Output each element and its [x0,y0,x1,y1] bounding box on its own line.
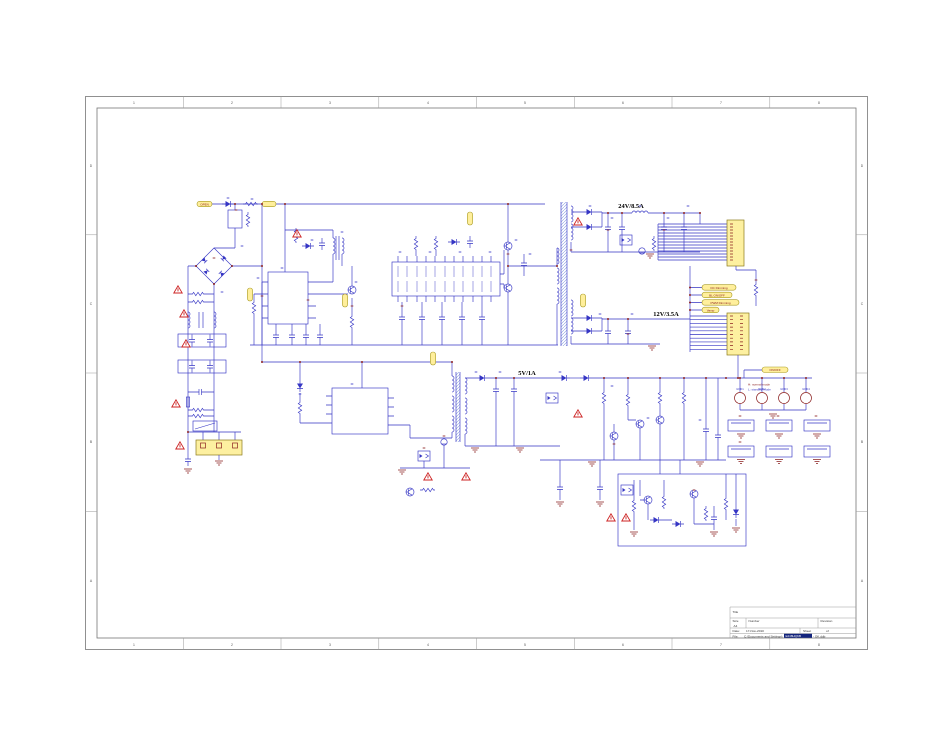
schematic-sheet: 12 34 56 78 12 34 56 78 DC BA DC BA Titl… [0,0,950,735]
net-label-vamp: Vamp [707,308,715,312]
net-label-dc-dimming: DC Dimming [710,286,727,290]
junction-dots [187,203,807,433]
size-label: Size [733,619,739,623]
svg-text:4: 4 [427,643,429,647]
svg-text:4: 4 [427,101,429,105]
emi-filter [178,292,226,373]
file-suffix: - OK.ddb [813,634,826,638]
svg-text:GND4: GND4 [802,387,810,391]
grid-row-labels-right: DC BA [861,164,864,583]
standby-ic [332,388,388,434]
grid-row-labels-left: DC BA [90,164,93,583]
rail-12v-label: 12V/3.5A [653,311,679,318]
svg-text:D: D [90,164,93,168]
svg-text:7: 7 [720,643,722,647]
svg-text:GND3: GND3 [780,387,788,391]
designator-specks [213,198,818,491]
size-value: A4 [734,624,738,628]
pwm-controller-ic [250,204,558,345]
svg-text:2: 2 [231,101,233,105]
standby-converter: 5V/1A [262,362,560,496]
number-label: Number [749,619,760,623]
svg-text:A: A [861,579,864,583]
svg-text:3: 3 [329,643,331,647]
svg-text:GND1: GND1 [736,387,744,391]
svg-text:6: 6 [622,101,624,105]
svg-text:8: 8 [818,101,820,105]
svg-text:B: B [861,440,864,444]
optocoupler-protection [621,485,633,495]
svg-text:8: 8 [818,643,820,647]
file-path: C:\Documents and Settings\ [744,634,783,638]
svg-text:C: C [90,302,93,306]
net-label-bl-onoff: BL ON/OFF [709,293,725,297]
chassis-ground-pads: GND1GND2 GND3GND4 ON/OFF H: normal mode … [726,367,812,418]
date-value: 17-Nov-2010 [746,629,764,633]
net-label-open: OPEN [200,202,209,206]
rail-24v: 24V/8.5A [583,203,700,258]
connector-cn1-ac-input [196,440,242,455]
mode-note-high: H: normal mode [748,383,770,387]
title-label: Title [733,610,739,614]
relay-symbol [228,210,242,228]
title-block: Title Size A4 Number Revision Date: 17-N… [730,607,856,638]
heatsink-symbols [728,420,830,464]
misc-bottom-parts [556,460,604,506]
date-label: Date: [733,629,741,633]
svg-text:5: 5 [524,643,526,647]
driver-transformer [285,228,356,345]
sheet-label: Sheet [803,629,811,633]
relay-inrush-circuit: OPEN [197,201,545,248]
svg-text:1: 1 [133,643,135,647]
net-label-blank [262,201,276,206]
optocoupler-standby [418,451,430,461]
sheet-of-label: of [826,629,829,633]
svg-text:3: 3 [329,101,331,105]
svg-text:A: A [90,579,93,583]
main-controller-ic [392,236,500,345]
net-label-pwm-dimming: PWM Dimming [711,301,731,305]
output-connector-cn3 [690,313,749,378]
schematic-canvas: 12 34 56 78 12 34 56 78 DC BA DC BA Titl… [0,0,950,735]
schematic: OPEN [172,198,830,547]
svg-text:7: 7 [720,101,722,105]
net-label-onoff: ON/OFF [769,368,780,372]
svg-text:C: C [861,302,864,306]
svg-text:2: 2 [231,643,233,647]
file-label: File: [733,634,739,638]
svg-text:6: 6 [622,643,624,647]
revision-label: Revision [821,619,833,623]
power-mosfets [500,204,557,345]
svg-text:D: D [861,164,864,168]
ac-inlet [184,389,242,473]
rail-5v-label: 5V/1A [518,370,536,377]
control-section-5v [540,375,726,466]
svg-text:B: B [90,440,93,444]
mosfet-q1 [348,286,356,294]
mode-note-low: L: standby mode [748,388,771,392]
file-highlight-text: E248HQKB [786,634,802,638]
svg-text:1: 1 [133,101,135,105]
optocoupler-control [546,393,558,403]
protection-feedback-box [618,460,746,546]
svg-text:5: 5 [524,101,526,105]
